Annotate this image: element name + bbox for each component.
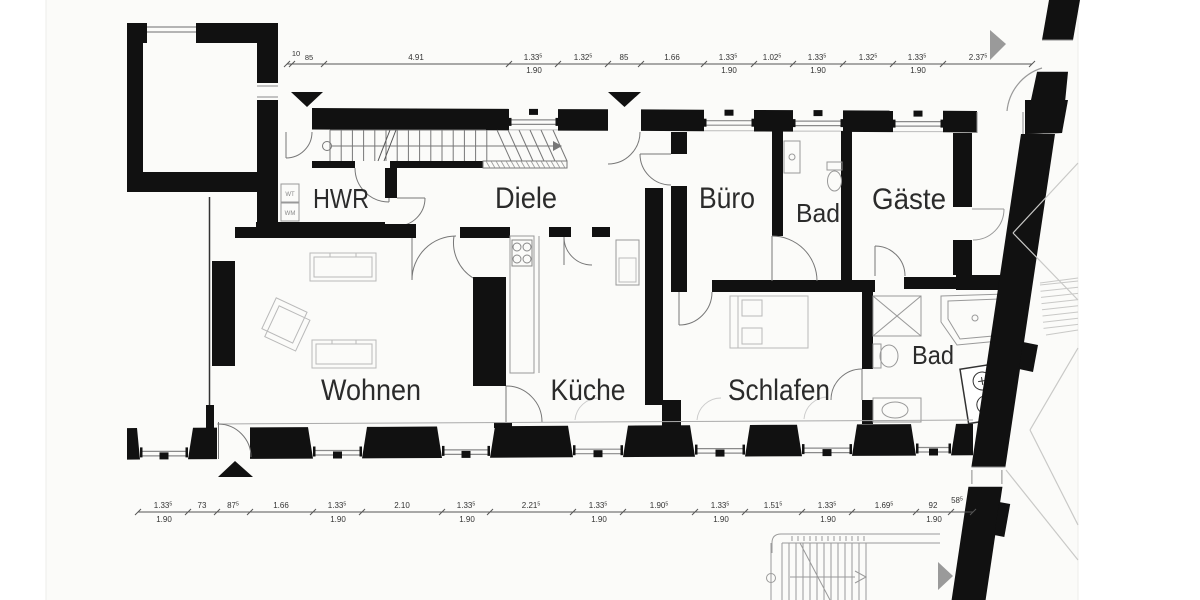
svg-text:Schlafen: Schlafen [728,374,830,407]
svg-text:Bad: Bad [912,340,954,370]
svg-text:1.90: 1.90 [713,515,729,524]
svg-text:1.90: 1.90 [459,515,475,524]
svg-text:Wohnen: Wohnen [321,374,421,407]
svg-text:2.10: 2.10 [394,501,410,510]
svg-text:4.91: 4.91 [408,53,424,62]
svg-text:1.90: 1.90 [156,515,172,524]
svg-text:Bad: Bad [796,198,840,228]
svg-text:85: 85 [620,53,629,62]
svg-text:1.90: 1.90 [721,66,737,75]
svg-text:1.90: 1.90 [910,66,926,75]
svg-text:Gäste: Gäste [872,183,946,216]
svg-text:10: 10 [292,49,300,58]
svg-text:1.90: 1.90 [591,515,607,524]
svg-text:85: 85 [305,53,313,62]
svg-text:1.90: 1.90 [526,66,542,75]
svg-text:92: 92 [929,501,938,510]
svg-text:73: 73 [198,501,207,510]
svg-text:WT: WT [285,192,295,198]
svg-text:1.90: 1.90 [820,515,836,524]
svg-text:1.90: 1.90 [810,66,826,75]
svg-text:1.66: 1.66 [664,53,680,62]
svg-text:1.90: 1.90 [926,515,942,524]
svg-text:1.90: 1.90 [330,515,346,524]
svg-text:Büro: Büro [699,182,755,215]
svg-text:HWR: HWR [313,183,369,214]
svg-text:WM: WM [285,211,296,217]
svg-text:Diele: Diele [495,182,557,215]
svg-text:1.66: 1.66 [273,501,289,510]
svg-text:Küche: Küche [551,374,626,407]
